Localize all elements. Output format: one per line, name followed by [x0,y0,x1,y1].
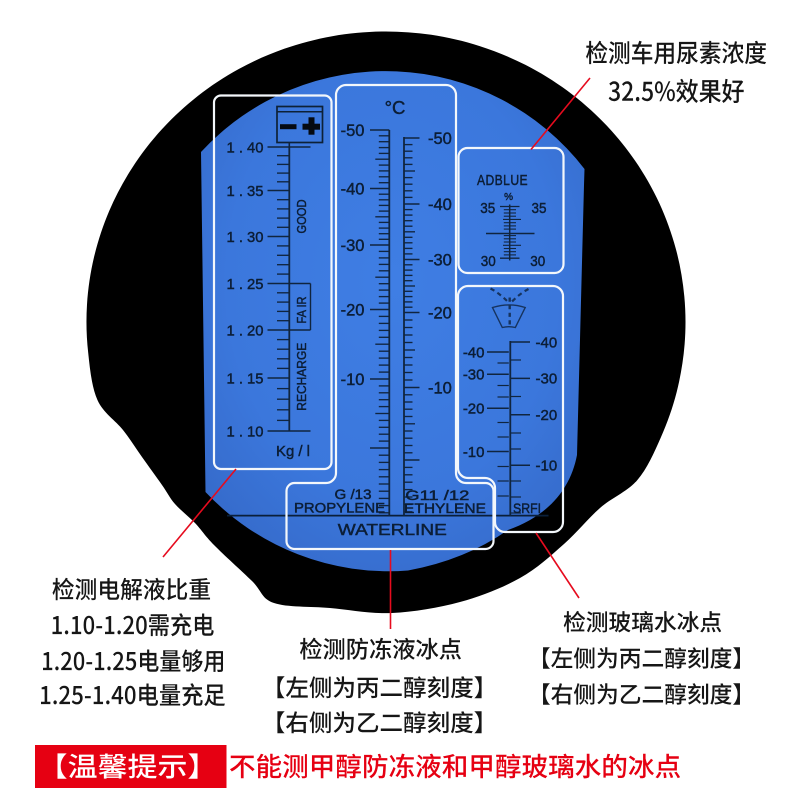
svg-text:35: 35 [532,201,547,217]
svg-text:WATERLINE: WATERLINE [338,522,447,539]
svg-text:-20: -20 [341,301,365,319]
svg-text:-10: -10 [463,444,485,461]
svg-text:SRFI: SRFI [513,501,541,516]
svg-text:-30: -30 [428,251,452,269]
svg-text:-10: -10 [536,458,558,475]
svg-text:30: 30 [530,254,545,270]
svg-text:1 . 25: 1 . 25 [227,276,264,293]
svg-text:-40: -40 [428,196,452,214]
svg-text:ADBLUE: ADBLUE [477,173,528,189]
svg-text:-10: -10 [341,371,365,389]
svg-text:1 . 35: 1 . 35 [227,183,264,200]
svg-text:FA IR: FA IR [295,297,309,324]
svg-text:GOOD: GOOD [295,200,309,234]
svg-text:°C: °C [385,97,406,118]
svg-text:-20: -20 [536,407,558,424]
svg-text:1 . 30: 1 . 30 [227,229,264,246]
svg-text:-40: -40 [463,344,485,361]
svg-text:-20: -20 [428,304,452,322]
svg-text:1 . 20: 1 . 20 [227,322,264,339]
svg-text:-30: -30 [536,371,558,388]
svg-text:-30: -30 [463,367,485,384]
svg-text:1 . 15: 1 . 15 [227,370,264,387]
svg-text:1 . 40: 1 . 40 [227,139,264,156]
svg-text:-20: -20 [463,401,485,418]
svg-text:-40: -40 [536,334,558,351]
svg-text:-50: -50 [428,130,452,148]
svg-text:1 . 10: 1 . 10 [227,423,264,440]
svg-text:30: 30 [481,254,496,270]
svg-text:%: % [504,192,513,203]
svg-text:35: 35 [480,201,495,217]
svg-text:PROPYLENE: PROPYLENE [294,500,385,515]
svg-text:-30: -30 [341,237,365,255]
svg-text:ETHYLENE: ETHYLENE [404,501,486,516]
svg-text:-10: -10 [428,379,452,397]
svg-text:Kg / l: Kg / l [276,444,310,460]
svg-text:-40: -40 [341,180,365,198]
svg-text:-50: -50 [341,122,365,140]
svg-text:RECHARGE: RECHARGE [295,343,309,411]
